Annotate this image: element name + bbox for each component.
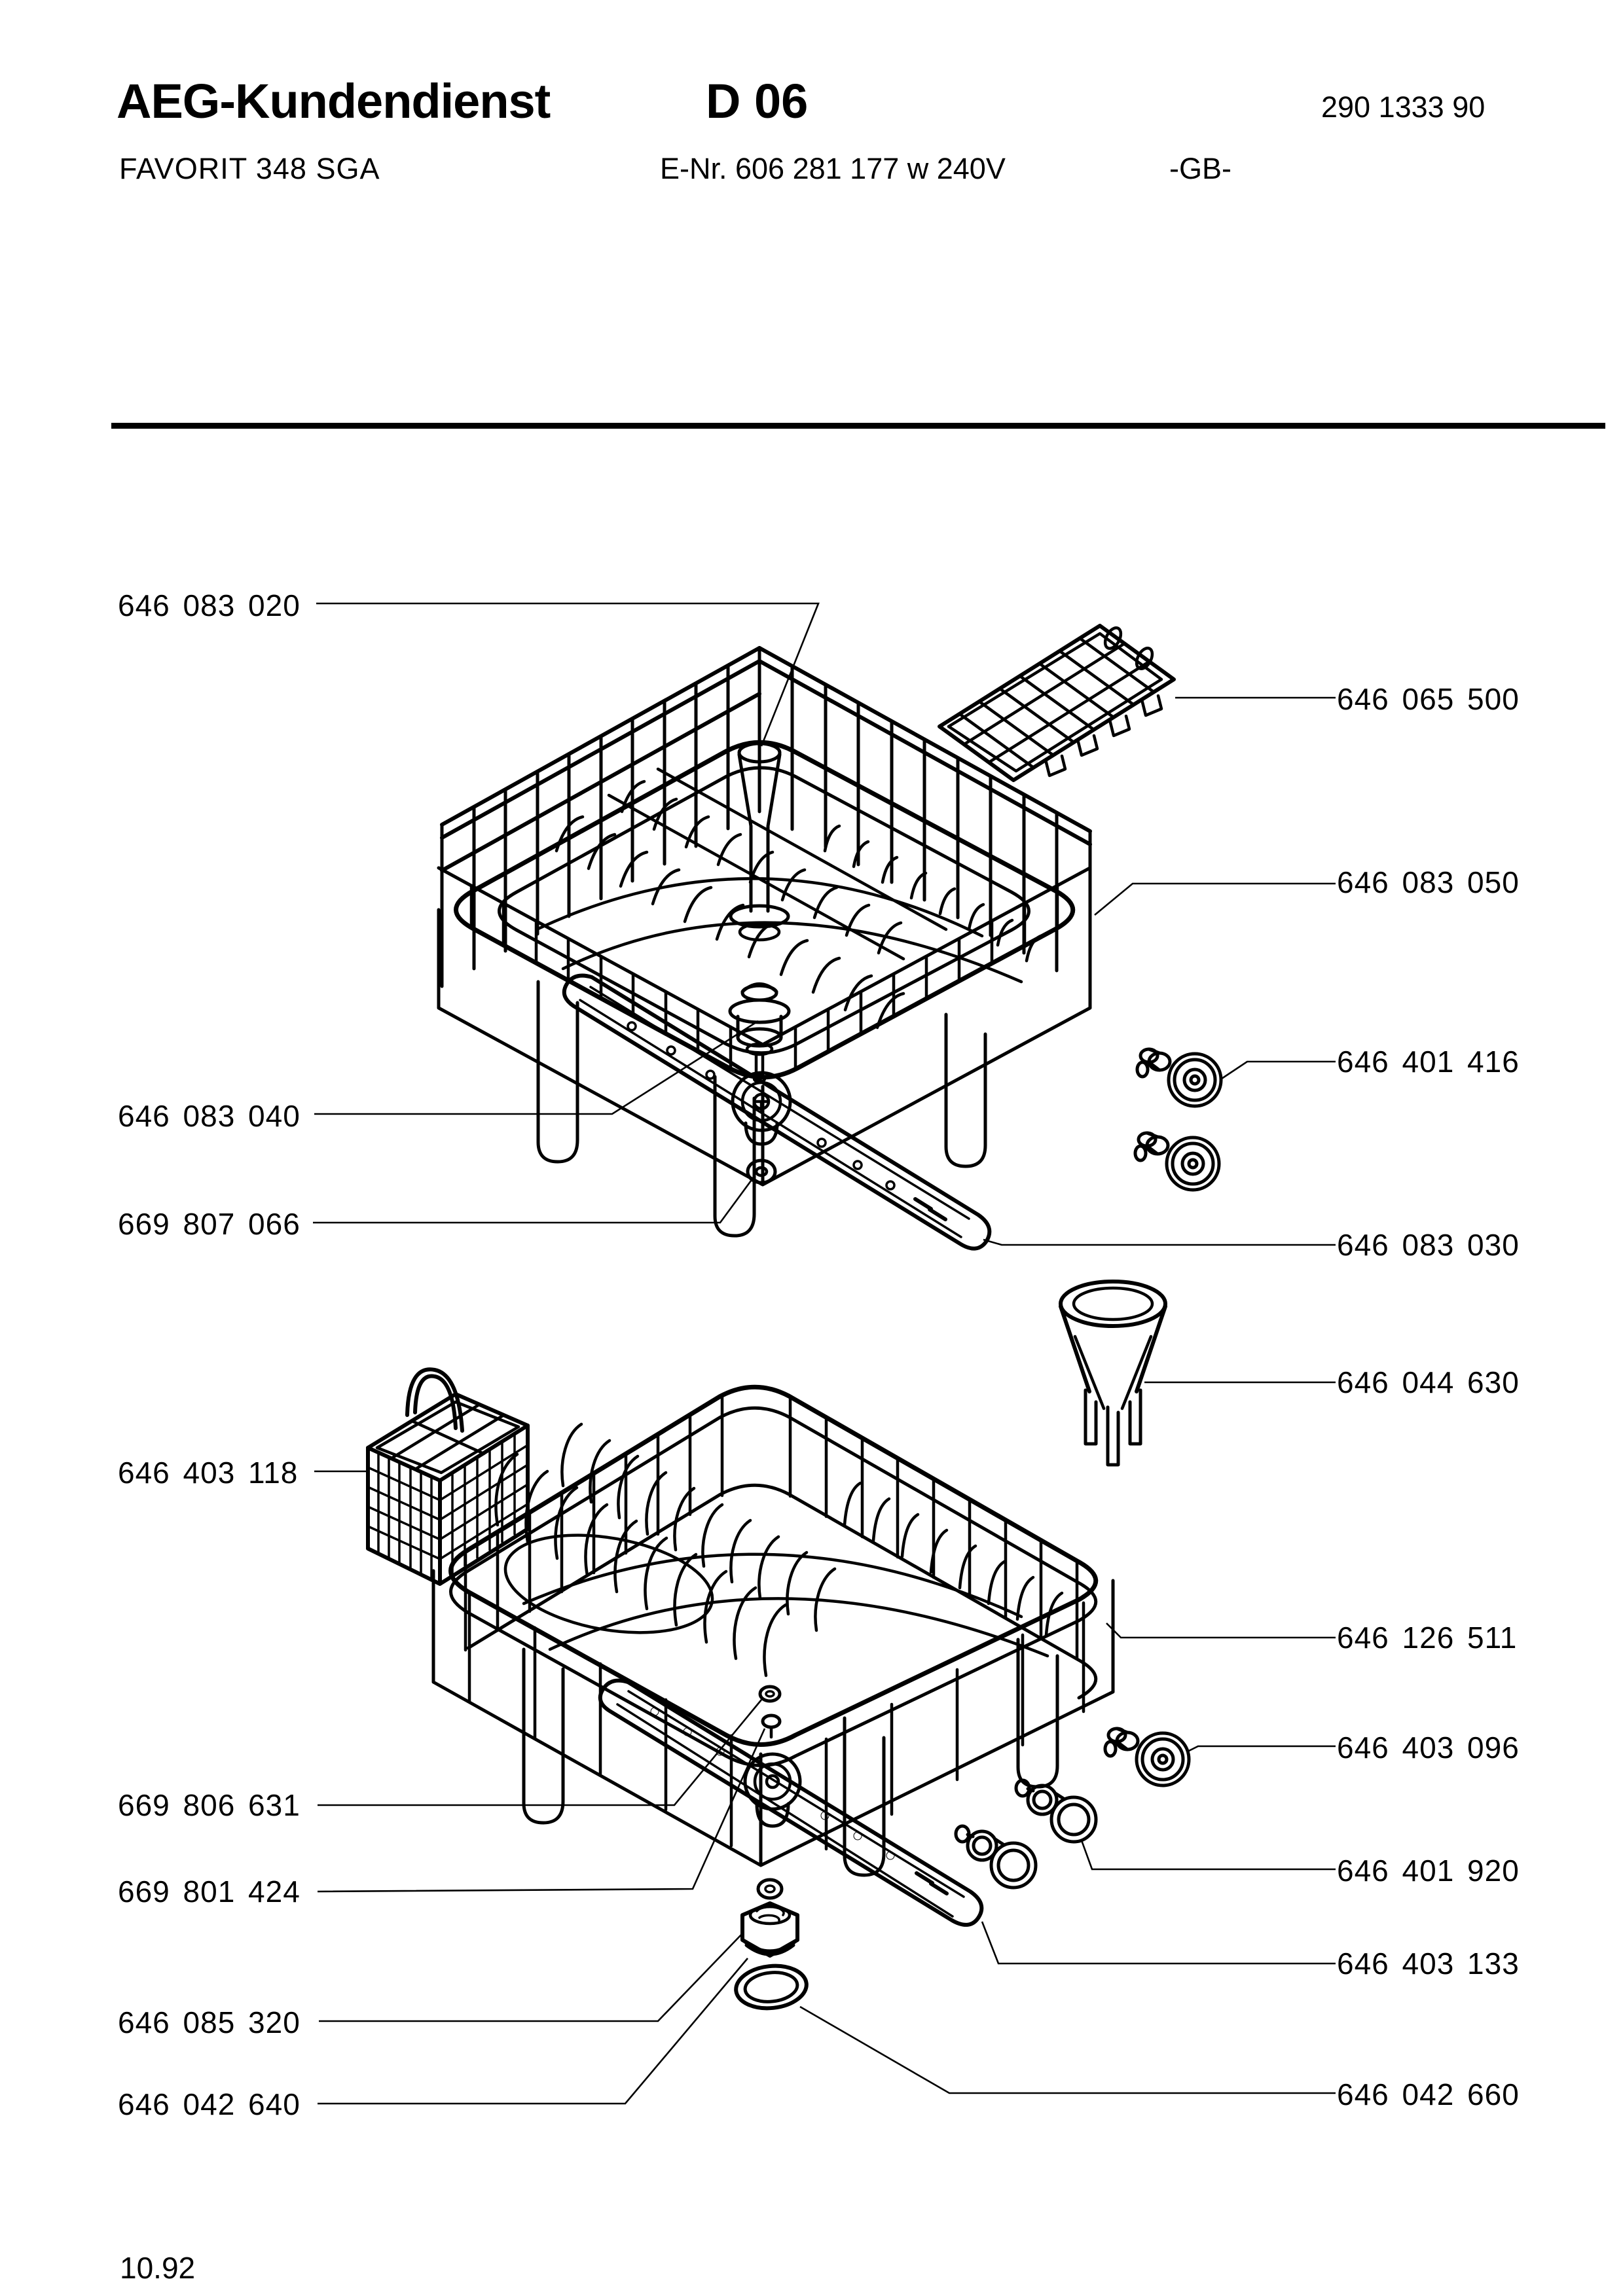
revision-date: 10.92	[120, 2250, 195, 2286]
leader-646-042-640	[318, 1958, 748, 2104]
part-label-646-126-511: 646 126 511	[1337, 1621, 1517, 1655]
part-label-669-801-424: 669 801 424	[118, 1874, 301, 1909]
leader-669-801-424	[318, 1729, 765, 1892]
part-label-646-083-040: 646 083 040	[118, 1099, 301, 1133]
lower-arm-washer-2	[763, 1715, 780, 1737]
lower-arm-washer-1	[760, 1687, 780, 1701]
cutlery-basket	[368, 1369, 528, 1584]
leader-646-126-511	[1106, 1623, 1336, 1638]
part-label-646-044-630: 646 044 630	[1337, 1365, 1520, 1399]
part-label-646-042-640: 646 042 640	[118, 2087, 301, 2121]
part-label-646-401-416: 646 401 416	[1337, 1045, 1520, 1079]
leader-646-403-096	[1188, 1746, 1336, 1751]
rack-wheel-lower	[1105, 1729, 1189, 1785]
part-label-646-065-500: 646 065 500	[1337, 682, 1520, 716]
leader-646-083-020	[316, 603, 818, 746]
part-label-646-403-133: 646 403 133	[1337, 1946, 1520, 1981]
leader-646-401-920	[1082, 1840, 1336, 1869]
leader-669-807-066	[313, 1178, 753, 1223]
roller-2	[956, 1826, 1036, 1888]
part-label-669-806-631: 669 806 631	[118, 1788, 301, 1822]
seal-ring	[734, 1963, 809, 2012]
leader-646-083-050	[1095, 884, 1336, 915]
spray-arm-hex-nut	[742, 1903, 797, 1956]
part-label-646-042-660: 646 042 660	[1337, 2077, 1520, 2111]
part-label-646-403-118: 646 403 118	[118, 1456, 298, 1490]
part-label-669-807-066: 669 807 066	[118, 1207, 301, 1241]
leader-646-403-133	[982, 1922, 1336, 1964]
part-label-646-083-020: 646 083 020	[118, 588, 301, 622]
leader-646-042-660	[800, 2007, 1336, 2093]
leader-646-401-416	[1222, 1062, 1336, 1079]
part-label-646-403-096: 646 403 096	[1337, 1731, 1520, 1765]
rack-wheel-upper-2	[1135, 1133, 1219, 1190]
part-label-646-083-030: 646 083 030	[1337, 1228, 1520, 1262]
service-diagram-page: AEG-Kundendienst D 06 290 1333 90 FAVORI…	[0, 0, 1623, 2296]
salt-funnel	[1061, 1282, 1165, 1465]
roller-1	[1016, 1780, 1096, 1842]
cup-shelf	[939, 625, 1174, 780]
part-label-646-083-050: 646 083 050	[1337, 865, 1520, 899]
leader-646-083-030	[983, 1240, 1336, 1245]
leader-646-083-040	[314, 1021, 758, 1114]
part-label-646-085-320: 646 085 320	[118, 2005, 301, 2039]
part-label-646-401-920: 646 401 920	[1337, 1854, 1520, 1888]
leader-646-085-320	[319, 1932, 744, 2021]
rack-wheel-upper-1	[1137, 1049, 1221, 1106]
